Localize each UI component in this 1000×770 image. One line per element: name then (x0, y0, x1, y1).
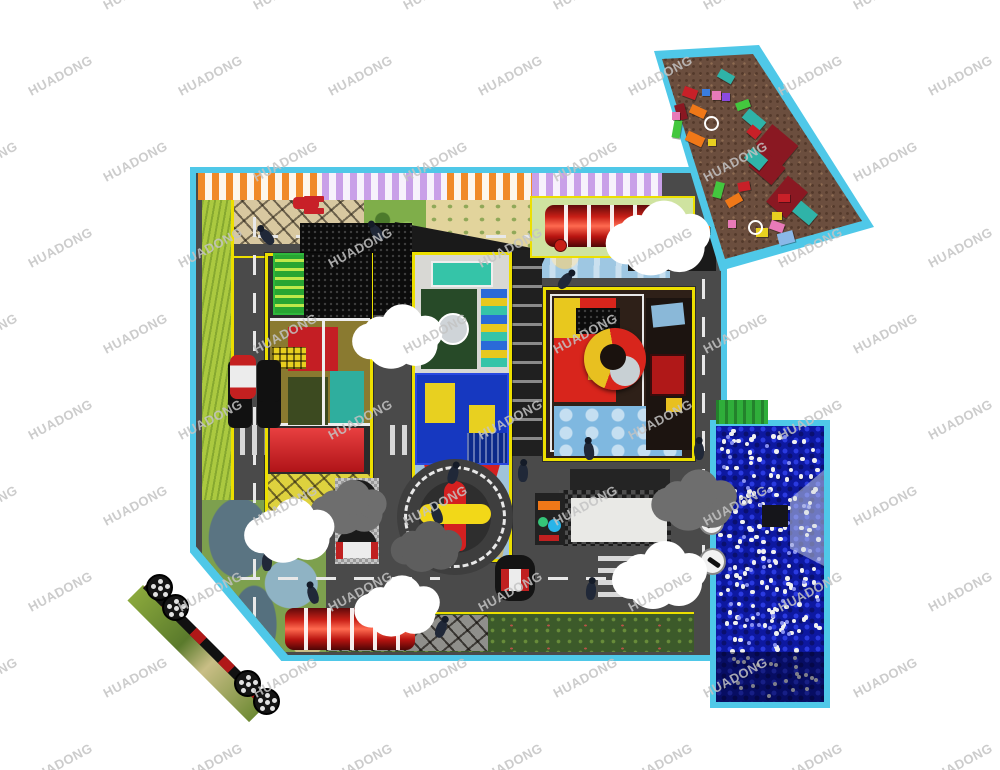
foam-block (689, 104, 707, 119)
ball (735, 582, 740, 587)
child-figure (305, 585, 320, 605)
foam-block (712, 181, 725, 199)
blaster-barrel-2 (707, 556, 721, 568)
ball (787, 564, 792, 569)
ball (743, 571, 748, 576)
watermark-text: HUADONG (401, 0, 470, 13)
foam-block (737, 181, 750, 192)
watermark-text: HUADONG (101, 0, 170, 13)
track-wheel-2 (162, 594, 189, 621)
ring-toy-1 (704, 116, 719, 131)
ball (769, 473, 774, 478)
ball (726, 449, 731, 454)
ball (785, 620, 789, 624)
ball (771, 434, 776, 439)
watermark-text: HUADONG (851, 310, 920, 356)
ball (770, 619, 775, 624)
ball (769, 578, 774, 583)
ball (781, 599, 785, 603)
ball (799, 474, 804, 479)
ball (745, 583, 749, 587)
ball (761, 556, 766, 561)
ball (802, 439, 807, 444)
child-figure (585, 582, 596, 601)
foam-block (682, 86, 699, 100)
cloud-2 (350, 299, 436, 354)
ball (727, 534, 732, 539)
ball (776, 474, 781, 479)
green-mat-top (716, 400, 768, 424)
ball (809, 474, 814, 479)
cloud-shadow-3 (389, 517, 457, 561)
watermark-text: HUADONG (326, 52, 395, 98)
ball (738, 638, 743, 643)
cloud-shadow-shape (400, 531, 426, 557)
wheel-hub-2 (174, 606, 179, 611)
watermark-text: HUADONG (101, 310, 170, 356)
ball (771, 550, 776, 555)
foam-block (722, 93, 730, 101)
ball (743, 624, 748, 629)
ball-pit-deep-end (716, 652, 824, 702)
ball (792, 619, 797, 624)
ball (750, 623, 754, 627)
foam-block (778, 194, 790, 202)
ball (774, 449, 779, 454)
ball (812, 567, 817, 572)
ball (733, 637, 738, 642)
ball (719, 592, 724, 597)
ball (768, 564, 773, 569)
watermark-text: HUADONG (101, 482, 170, 528)
watermark-text: HUADONG (776, 740, 845, 770)
ball (787, 632, 791, 636)
ball (749, 461, 754, 466)
ball (728, 567, 732, 571)
watermark-text: HUADONG (0, 138, 20, 184)
ball (736, 439, 741, 444)
ball (775, 608, 780, 613)
child-figure (257, 227, 276, 247)
cloud-shadow-2 (650, 465, 731, 517)
ball (768, 626, 772, 630)
watermark-text: HUADONG (0, 310, 20, 356)
ball (778, 528, 783, 533)
watermark-text: HUADONG (851, 482, 920, 528)
ball (749, 437, 754, 442)
watermark-text: HUADONG (176, 740, 245, 770)
ball (757, 623, 761, 627)
ball (749, 538, 754, 543)
watermark-text: HUADONG (26, 396, 95, 442)
ball (740, 520, 745, 525)
ball (730, 441, 734, 445)
ball (774, 493, 779, 498)
ball (738, 576, 743, 581)
wheel-hub-1 (158, 586, 163, 591)
ball (792, 587, 796, 591)
watermark-text: HUADONG (401, 654, 470, 700)
foam-block (671, 119, 682, 138)
ball (784, 605, 789, 610)
ball (752, 474, 757, 479)
ball (757, 549, 762, 554)
ball (735, 545, 740, 550)
cloud-4 (353, 571, 434, 623)
ball (814, 623, 819, 628)
watermark-text: HUADONG (26, 224, 95, 270)
child-figure (433, 619, 449, 639)
ball (720, 447, 725, 452)
ball (771, 467, 776, 472)
ring-toy-2 (748, 220, 763, 235)
foam-block (728, 220, 736, 228)
ball (817, 626, 822, 631)
ball (785, 477, 790, 482)
watermark-text: HUADONG (926, 568, 995, 614)
child-figure (262, 553, 272, 571)
ball (811, 448, 816, 453)
watermark-text: HUADONG (851, 654, 920, 700)
watermark-text: HUADONG (176, 52, 245, 98)
cloud-shadow-shape (662, 481, 693, 512)
ball (778, 537, 783, 542)
ball (728, 455, 732, 459)
ball (742, 500, 747, 505)
watermark-text: HUADONG (101, 138, 170, 184)
ball (774, 631, 779, 636)
ball (787, 551, 791, 555)
ball (739, 495, 744, 500)
ball (726, 588, 731, 593)
ball (733, 565, 738, 570)
watermark-text: HUADONG (26, 740, 95, 770)
ball (767, 489, 771, 493)
ball (802, 580, 806, 584)
watermark-text: HUADONG (251, 0, 320, 13)
ball (725, 621, 730, 626)
watermark-text: HUADONG (701, 0, 770, 13)
cloud-3 (242, 493, 328, 548)
ball (757, 457, 762, 462)
ball (787, 461, 791, 465)
ball (756, 612, 760, 616)
ball (751, 616, 756, 621)
watermark-text: HUADONG (551, 0, 620, 13)
ball (749, 568, 753, 572)
foam-block (708, 139, 716, 146)
foam-block (702, 89, 710, 96)
ball (738, 539, 743, 544)
ball (770, 526, 775, 531)
foam-block (672, 112, 680, 120)
ball (737, 616, 741, 620)
ball (754, 535, 759, 540)
watermark-text: HUADONG (626, 740, 695, 770)
dark-step (762, 505, 788, 527)
foam-block (777, 230, 796, 246)
ball (816, 598, 820, 602)
ball (812, 458, 817, 463)
ball (765, 444, 769, 448)
foam-block (712, 91, 721, 100)
watermark-text: HUADONG (0, 482, 20, 528)
watermark-text: HUADONG (101, 654, 170, 700)
wheel-hub-4 (265, 700, 270, 705)
ball (792, 440, 797, 445)
watermark-text: HUADONG (926, 52, 995, 98)
ball (733, 489, 738, 494)
ball (745, 442, 750, 447)
watermark-text: HUADONG (26, 52, 95, 98)
ball (789, 468, 794, 473)
ball (767, 559, 771, 563)
cloud-shape (364, 317, 396, 349)
ball (761, 540, 766, 545)
cloud-shape (256, 511, 288, 543)
ball (800, 568, 805, 573)
ball (800, 457, 805, 462)
ball (746, 486, 750, 490)
child-figure (694, 442, 705, 460)
watermark-text: HUADONG (851, 0, 920, 13)
cloud-shape (365, 587, 396, 618)
ball (773, 643, 777, 647)
ball (718, 533, 723, 538)
watermark-text: HUADONG (926, 740, 995, 770)
ball (733, 509, 738, 514)
ball (747, 641, 751, 645)
ball (785, 576, 790, 581)
ball (734, 466, 739, 471)
ball (748, 499, 753, 504)
ball (781, 630, 785, 634)
ball (748, 450, 753, 455)
ball (797, 602, 802, 607)
ball (752, 560, 757, 565)
ball (775, 587, 780, 592)
foam-block (685, 131, 706, 148)
ball (815, 468, 820, 473)
ball (729, 602, 733, 606)
ball (762, 565, 766, 569)
foam-block (717, 69, 735, 85)
ball (802, 617, 807, 622)
ball (750, 590, 755, 595)
playground-floorplan-render: HUADONGHUADONGHUADONGHUADONGHUADONGHUADO… (0, 0, 1000, 770)
ball (797, 629, 802, 634)
ball (728, 610, 733, 615)
watermark-text: HUADONG (0, 0, 20, 13)
cloud-5 (610, 536, 700, 594)
track-wheel-4 (253, 688, 280, 715)
foam-block (772, 212, 782, 220)
cloud-1 (604, 195, 703, 259)
ball (777, 435, 782, 440)
ball (742, 535, 746, 539)
ball (783, 589, 788, 594)
ball-pit (716, 426, 824, 702)
ball (747, 526, 752, 531)
watermark-text: HUADONG (326, 740, 395, 770)
cloud-shape (624, 554, 658, 588)
ball (760, 580, 765, 585)
ball (812, 580, 817, 585)
ball (746, 493, 751, 498)
blaster-barrel-1 (706, 518, 720, 529)
watermark-text: HUADONG (551, 654, 620, 700)
watermark-text: HUADONG (0, 654, 20, 700)
ball (725, 574, 730, 579)
ball (783, 435, 787, 439)
foam-block (769, 220, 785, 233)
child-figure (368, 223, 387, 243)
child-figure (518, 464, 528, 482)
ball (765, 585, 770, 590)
watermark-text: HUADONG (926, 396, 995, 442)
wheel-hub-3 (246, 682, 251, 687)
watermark-text: HUADONG (26, 568, 95, 614)
ball (737, 602, 742, 607)
ball (745, 618, 749, 622)
ball (765, 530, 770, 535)
ball (733, 621, 738, 626)
cloud-shape (619, 215, 656, 252)
watermark-text: HUADONG (476, 740, 545, 770)
ball (761, 549, 766, 554)
ball (780, 621, 784, 625)
ball (749, 456, 754, 461)
ball (752, 491, 757, 496)
ball (722, 439, 727, 444)
ball (726, 435, 730, 439)
watermark-text: HUADONG (476, 52, 545, 98)
ball (742, 479, 746, 483)
ball (731, 429, 736, 434)
watermark-text: HUADONG (926, 224, 995, 270)
child-figure (446, 465, 460, 485)
child-figure (556, 271, 575, 291)
child-figure (583, 441, 595, 460)
foam-block (725, 193, 743, 209)
ball (747, 489, 752, 494)
ball (751, 604, 756, 609)
ball-blaster-2 (699, 548, 726, 575)
ball (763, 623, 768, 628)
